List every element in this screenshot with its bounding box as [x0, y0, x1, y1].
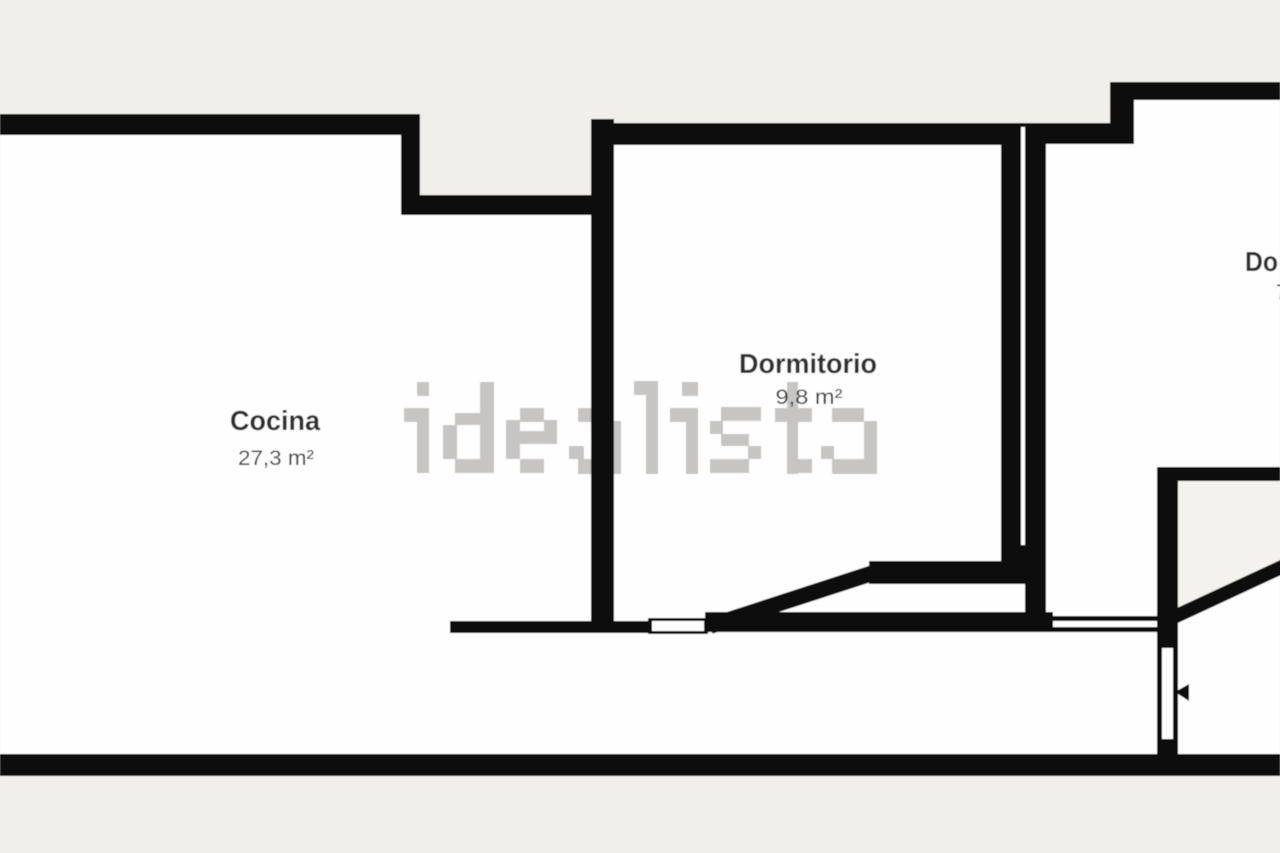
svg-text:Cocina: Cocina: [230, 405, 320, 436]
svg-text:27,3 m²: 27,3 m²: [238, 447, 314, 470]
svg-text:7,: 7,: [1276, 281, 1280, 304]
svg-text:Dormitorio: Dormitorio: [739, 348, 877, 379]
svg-text:Do: Do: [1245, 246, 1278, 277]
svg-text:9,8 m²: 9,8 m²: [776, 386, 843, 409]
